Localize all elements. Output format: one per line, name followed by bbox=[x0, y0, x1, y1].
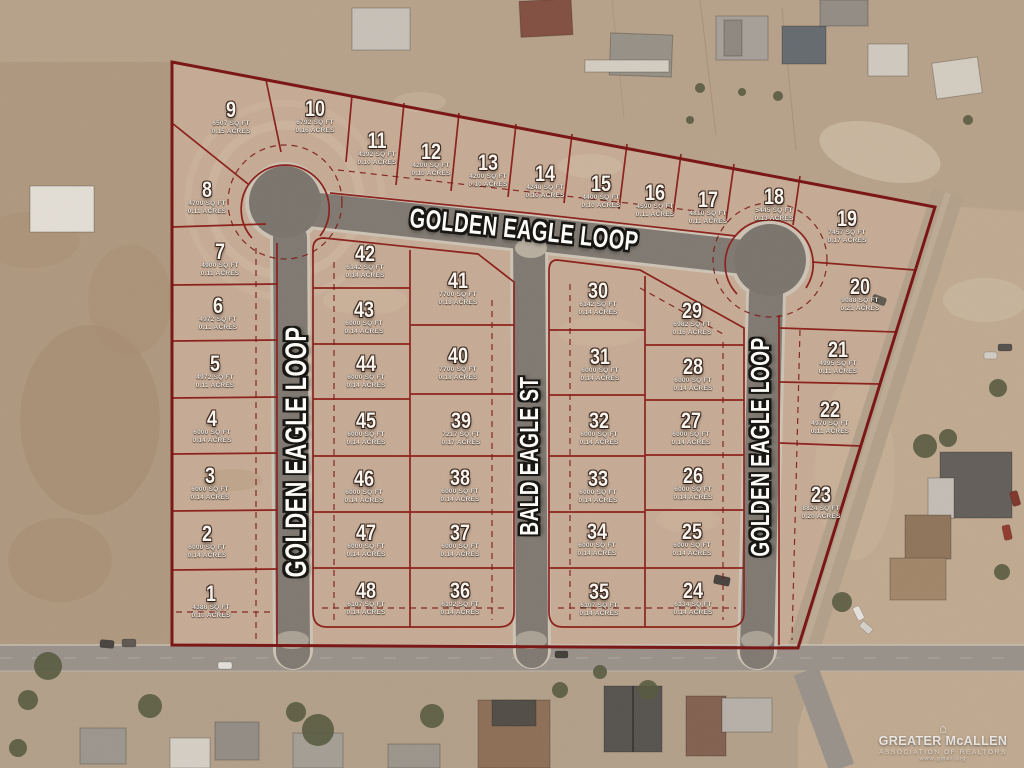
lot-acres: 0.14 ACRES bbox=[579, 497, 618, 504]
lot-label-35: 356107 SQ FT0.14 ACRES bbox=[580, 583, 619, 617]
lot-label-38: 386000 SQ FT0.14 ACRES bbox=[441, 469, 480, 503]
lot-sqft: 4970 SQ FT bbox=[811, 421, 850, 428]
lot-acres: 0.14 ACRES bbox=[674, 494, 713, 501]
lot-acres: 0.10 ACRES bbox=[526, 192, 565, 199]
lot-acres: 0.14 ACRES bbox=[345, 497, 384, 504]
lot-sqft: 6000 SQ FT bbox=[580, 432, 619, 439]
lot-acres: 0.14 ACRES bbox=[673, 550, 712, 557]
lot-number: 25 bbox=[673, 522, 710, 544]
lot-sqft: 4200 SQ FT bbox=[469, 174, 508, 181]
watermark-line3: www.gmar.org bbox=[868, 756, 1018, 762]
lot-number: 35 bbox=[580, 582, 617, 604]
lot-number: 40 bbox=[439, 346, 476, 368]
lot-acres: 0.14 ACRES bbox=[580, 439, 619, 446]
lot-number: 13 bbox=[469, 153, 506, 175]
lot-label-41: 417700 SQ FT0.18 ACRES bbox=[439, 272, 478, 306]
lot-acres: 0.11 ACRES bbox=[811, 428, 850, 435]
lot-sqft: 6000 SQ FT bbox=[674, 378, 713, 385]
lot-sqft: 4400 SQ FT bbox=[582, 195, 621, 202]
lot-number: 19 bbox=[828, 209, 865, 231]
lot-label-15: 154400 SQ FT0.10 ACRES bbox=[582, 175, 621, 209]
lot-acres: 0.14 ACRES bbox=[581, 375, 620, 382]
lot-number: 12 bbox=[412, 142, 449, 164]
lot-acres: 0.21 ACRES bbox=[841, 305, 880, 312]
lot-sqft: 7700 SQ FT bbox=[439, 367, 478, 374]
lot-sqft: 6000 SQ FT bbox=[347, 432, 386, 439]
lot-sqft: 6102 SQ FT bbox=[441, 602, 480, 609]
watermark-line1: GREATER McALLEN bbox=[868, 735, 1018, 749]
lot-acres: 0.14 ACRES bbox=[579, 309, 618, 316]
lot-sqft: 6000 SQ FT bbox=[347, 544, 386, 551]
lot-number: 6 bbox=[200, 296, 237, 318]
lot-acres: 0.20 ACRES bbox=[802, 513, 841, 520]
street-label-bald-eagle-st: BALD EAGLE ST bbox=[516, 376, 546, 535]
lot-acres: 0.10 ACRES bbox=[192, 612, 231, 619]
lot-label-29: 296982 SQ FT0.16 ACRES bbox=[673, 302, 712, 336]
lot-number: 22 bbox=[812, 400, 849, 422]
lot-sqft: 7457 SQ FT bbox=[828, 230, 867, 237]
lot-acres: 0.14 ACRES bbox=[578, 550, 617, 557]
lot-number: 27 bbox=[672, 411, 709, 433]
lot-sqft: 5445 SQ FT bbox=[755, 208, 794, 215]
lot-number: 18 bbox=[755, 187, 792, 209]
lot-number: 4 bbox=[193, 409, 230, 431]
lot-number: 8 bbox=[189, 180, 226, 202]
lot-sqft: 4388 SQ FT bbox=[192, 605, 231, 612]
lot-number: 11 bbox=[358, 131, 395, 153]
lot-label-25: 256000 SQ FT0.14 ACRES bbox=[673, 523, 712, 557]
lot-sqft: 4900 SQ FT bbox=[201, 263, 240, 270]
lot-number: 16 bbox=[637, 183, 674, 205]
lot-sqft: 6000 SQ FT bbox=[579, 490, 618, 497]
lot-acres: 0.14 ACRES bbox=[188, 552, 227, 559]
lot-sqft: 9088 SQ FT bbox=[841, 298, 880, 305]
lot-label-43: 436000 SQ FT0.14 ACRES bbox=[345, 301, 384, 335]
lot-number: 2 bbox=[188, 524, 225, 546]
lot-label-18: 185445 SQ FT0.13 ACRES bbox=[755, 188, 794, 222]
lot-sqft: 6000 SQ FT bbox=[191, 487, 230, 494]
lot-acres: 0.10 ACRES bbox=[582, 202, 621, 209]
lot-label-3: 36000 SQ FT0.14 ACRES bbox=[191, 467, 230, 501]
lot-label-33: 336000 SQ FT0.14 ACRES bbox=[579, 470, 618, 504]
lot-acres: 0.18 ACRES bbox=[439, 374, 478, 381]
lot-label-21: 214995 SQ FT0.11 ACRES bbox=[819, 341, 858, 375]
lot-label-9: 96507 SQ FT0.15 ACRES bbox=[212, 101, 251, 135]
lot-acres: 0.16 ACRES bbox=[296, 127, 335, 134]
lot-number: 21 bbox=[820, 340, 857, 362]
watermark-line2: ASSOCIATION OF REALTORS bbox=[868, 749, 1018, 756]
lot-label-11: 114392 SQ FT0.10 ACRES bbox=[358, 132, 397, 166]
lot-number: 38 bbox=[441, 468, 478, 490]
lot-acres: 0.14 ACRES bbox=[441, 496, 480, 503]
lot-number: 36 bbox=[441, 581, 478, 603]
lot-sqft: 6000 SQ FT bbox=[674, 487, 713, 494]
lot-acres: 0.14 ACRES bbox=[191, 494, 230, 501]
lot-number: 47 bbox=[347, 523, 384, 545]
lot-acres: 0.16 ACRES bbox=[673, 329, 712, 336]
lot-label-1: 14388 SQ FT0.10 ACRES bbox=[192, 585, 231, 619]
lot-sqft: 6000 SQ FT bbox=[578, 543, 617, 550]
lot-label-17: 174810 SQ FT0.11 ACRES bbox=[689, 191, 728, 225]
lot-label-14: 144248 SQ FT0.10 ACRES bbox=[526, 165, 565, 199]
lot-number: 5 bbox=[197, 354, 234, 376]
lot-label-36: 366102 SQ FT0.14 ACRES bbox=[441, 582, 480, 616]
street-label-golden-eagle-loop-left: GOLDEN EAGLE LOOP bbox=[278, 327, 313, 578]
lot-label-28: 286000 SQ FT0.14 ACRES bbox=[674, 358, 713, 392]
lot-number: 37 bbox=[441, 523, 478, 545]
lot-label-22: 224970 SQ FT0.11 ACRES bbox=[811, 401, 850, 435]
lot-number: 26 bbox=[674, 466, 711, 488]
lot-acres: 0.14 ACRES bbox=[346, 272, 385, 279]
lot-acres: 0.13 ACRES bbox=[755, 215, 794, 222]
lot-label-26: 266000 SQ FT0.14 ACRES bbox=[674, 467, 713, 501]
lot-sqft: 6000 SQ FT bbox=[345, 490, 384, 497]
lot-label-45: 456000 SQ FT0.14 ACRES bbox=[347, 412, 386, 446]
lot-acres: 0.15 ACRES bbox=[212, 128, 251, 135]
lot-label-40: 407700 SQ FT0.18 ACRES bbox=[439, 347, 478, 381]
lot-sqft: 6000 SQ FT bbox=[581, 368, 620, 375]
lot-label-23: 238824 SQ FT0.20 ACRES bbox=[802, 486, 841, 520]
lot-label-46: 466000 SQ FT0.14 ACRES bbox=[345, 470, 384, 504]
lot-label-42: 426142 SQ FT0.14 ACRES bbox=[346, 245, 385, 279]
lot-label-30: 306142 SQ FT0.14 ACRES bbox=[579, 282, 618, 316]
lot-sqft: 6000 SQ FT bbox=[347, 375, 386, 382]
lot-acres: 0.14 ACRES bbox=[674, 609, 713, 616]
lot-label-6: 64972 SQ FT0.11 ACRES bbox=[199, 297, 238, 331]
lot-acres: 0.11 ACRES bbox=[201, 270, 240, 277]
lot-label-44: 446000 SQ FT0.14 ACRES bbox=[347, 355, 386, 389]
lot-acres: 0.10 ACRES bbox=[358, 159, 397, 166]
lot-number: 7 bbox=[202, 242, 239, 264]
lot-number: 42 bbox=[346, 244, 383, 266]
lot-acres: 0.14 ACRES bbox=[672, 439, 711, 446]
lot-sqft: 6142 SQ FT bbox=[346, 265, 385, 272]
lot-number: 20 bbox=[841, 277, 878, 299]
lot-sqft: 4810 SQ FT bbox=[689, 211, 728, 218]
lot-sqft: 6982 SQ FT bbox=[673, 322, 712, 329]
lot-acres: 0.11 ACRES bbox=[636, 211, 675, 218]
lot-sqft: 6792 SQ FT bbox=[296, 120, 335, 127]
lot-label-7: 74900 SQ FT0.11 ACRES bbox=[201, 243, 240, 277]
lot-sqft: 4248 SQ FT bbox=[526, 185, 565, 192]
lot-label-13: 134200 SQ FT0.10 ACRES bbox=[469, 154, 508, 188]
lot-number: 1 bbox=[192, 584, 229, 606]
lot-sqft: 6000 SQ FT bbox=[345, 321, 384, 328]
lot-label-39: 397217 SQ FT0.17 ACRES bbox=[442, 412, 481, 446]
lot-acres: 0.14 ACRES bbox=[347, 439, 386, 446]
lot-label-32: 326000 SQ FT0.14 ACRES bbox=[580, 412, 619, 446]
lot-label-47: 476000 SQ FT0.14 ACRES bbox=[347, 524, 386, 558]
lot-acres: 0.10 ACRES bbox=[469, 181, 508, 188]
lot-sqft: 6134 SQ FT bbox=[674, 602, 713, 609]
lot-label-37: 376000 SQ FT0.14 ACRES bbox=[441, 524, 480, 558]
lot-sqft: 6000 SQ FT bbox=[441, 544, 480, 551]
street-label-golden-eagle-loop-right: GOLDEN EAGLE LOOP bbox=[747, 337, 777, 556]
lot-sqft: 6107 SQ FT bbox=[580, 603, 619, 610]
lot-acres: 0.14 ACRES bbox=[347, 609, 386, 616]
street-label-golden-eagle-loop-top: GOLDEN EAGLE LOOP bbox=[408, 203, 640, 258]
lot-number: 29 bbox=[673, 301, 710, 323]
lot-number: 41 bbox=[439, 271, 476, 293]
lot-label-20: 209088 SQ FT0.21 ACRES bbox=[841, 278, 880, 312]
lot-sqft: 7700 SQ FT bbox=[439, 292, 478, 299]
label-layer: GOLDEN EAGLE LOOP GOLDEN EAGLE LOOP GOLD… bbox=[0, 0, 1024, 768]
lot-number: 46 bbox=[345, 469, 382, 491]
lot-number: 33 bbox=[579, 469, 616, 491]
lot-acres: 0.17 ACRES bbox=[442, 439, 481, 446]
lot-number: 14 bbox=[526, 164, 563, 186]
lot-sqft: 6000 SQ FT bbox=[672, 432, 711, 439]
lot-number: 9 bbox=[212, 100, 249, 122]
lot-sqft: 4700 SQ FT bbox=[188, 201, 227, 208]
lot-acres: 0.14 ACRES bbox=[193, 437, 232, 444]
lot-number: 10 bbox=[296, 99, 333, 121]
lot-number: 30 bbox=[579, 281, 616, 303]
lot-acres: 0.11 ACRES bbox=[819, 368, 858, 375]
lot-label-31: 316000 SQ FT0.14 ACRES bbox=[581, 348, 620, 382]
lot-label-5: 54972 SQ FT0.11 ACRES bbox=[196, 355, 235, 389]
lot-sqft: 7217 SQ FT bbox=[442, 432, 481, 439]
lot-sqft: 6107 SQ FT bbox=[347, 602, 386, 609]
lot-sqft: 4972 SQ FT bbox=[199, 317, 238, 324]
lot-number: 23 bbox=[802, 485, 839, 507]
lot-sqft: 6507 SQ FT bbox=[212, 121, 251, 128]
lot-acres: 0.14 ACRES bbox=[441, 609, 480, 616]
lot-number: 32 bbox=[580, 411, 617, 433]
lot-number: 43 bbox=[345, 300, 382, 322]
lot-sqft: 6142 SQ FT bbox=[579, 302, 618, 309]
lot-acres: 0.11 ACRES bbox=[199, 324, 238, 331]
lot-acres: 0.10 ACRES bbox=[412, 170, 451, 177]
lot-sqft: 6000 SQ FT bbox=[673, 543, 712, 550]
lot-label-8: 84700 SQ FT0.11 ACRES bbox=[188, 181, 227, 215]
lot-acres: 0.14 ACRES bbox=[674, 385, 713, 392]
lot-number: 39 bbox=[442, 411, 479, 433]
plat-map: GOLDEN EAGLE LOOP GOLDEN EAGLE LOOP GOLD… bbox=[0, 0, 1024, 768]
lot-label-2: 26000 SQ FT0.14 ACRES bbox=[188, 525, 227, 559]
lot-number: 45 bbox=[347, 411, 384, 433]
lot-sqft: 4200 SQ FT bbox=[412, 163, 451, 170]
lot-number: 17 bbox=[690, 190, 727, 212]
lot-acres: 0.14 ACRES bbox=[347, 551, 386, 558]
lot-acres: 0.14 ACRES bbox=[580, 610, 619, 617]
lot-sqft: 8824 SQ FT bbox=[802, 506, 841, 513]
lot-sqft: 6000 SQ FT bbox=[193, 430, 232, 437]
lot-sqft: 4972 SQ FT bbox=[196, 375, 235, 382]
lot-sqft: 6000 SQ FT bbox=[441, 489, 480, 496]
house-icon: ⌂ bbox=[868, 722, 1018, 735]
lot-label-48: 486107 SQ FT0.14 ACRES bbox=[347, 582, 386, 616]
lot-label-16: 164590 SQ FT0.11 ACRES bbox=[636, 184, 675, 218]
lot-acres: 0.14 ACRES bbox=[345, 328, 384, 335]
lot-acres: 0.11 ACRES bbox=[689, 218, 728, 225]
lot-acres: 0.18 ACRES bbox=[439, 299, 478, 306]
lot-acres: 0.14 ACRES bbox=[347, 382, 386, 389]
lot-acres: 0.14 ACRES bbox=[441, 551, 480, 558]
lot-number: 3 bbox=[191, 466, 228, 488]
lot-number: 31 bbox=[581, 347, 618, 369]
lot-number: 24 bbox=[674, 581, 711, 603]
lot-acres: 0.11 ACRES bbox=[196, 382, 235, 389]
lot-label-19: 197457 SQ FT0.17 ACRES bbox=[828, 210, 867, 244]
lot-sqft: 4590 SQ FT bbox=[636, 204, 675, 211]
lot-acres: 0.17 ACRES bbox=[828, 237, 867, 244]
lot-number: 15 bbox=[582, 174, 619, 196]
lot-number: 48 bbox=[347, 581, 384, 603]
lot-number: 34 bbox=[578, 522, 615, 544]
lot-label-4: 46000 SQ FT0.14 ACRES bbox=[193, 410, 232, 444]
lot-label-24: 246134 SQ FT0.14 ACRES bbox=[674, 582, 713, 616]
lot-acres: 0.11 ACRES bbox=[188, 208, 227, 215]
lot-sqft: 4392 SQ FT bbox=[358, 152, 397, 159]
lot-label-34: 346000 SQ FT0.14 ACRES bbox=[578, 523, 617, 557]
lot-sqft: 6000 SQ FT bbox=[188, 545, 227, 552]
lot-label-10: 106792 SQ FT0.16 ACRES bbox=[296, 100, 335, 134]
lot-label-27: 276000 SQ FT0.14 ACRES bbox=[672, 412, 711, 446]
lot-sqft: 4995 SQ FT bbox=[819, 361, 858, 368]
watermark: ⌂ GREATER McALLEN ASSOCIATION OF REALTOR… bbox=[868, 722, 1018, 762]
lot-number: 28 bbox=[674, 357, 711, 379]
lot-number: 44 bbox=[347, 354, 384, 376]
lot-label-12: 124200 SQ FT0.10 ACRES bbox=[412, 143, 451, 177]
